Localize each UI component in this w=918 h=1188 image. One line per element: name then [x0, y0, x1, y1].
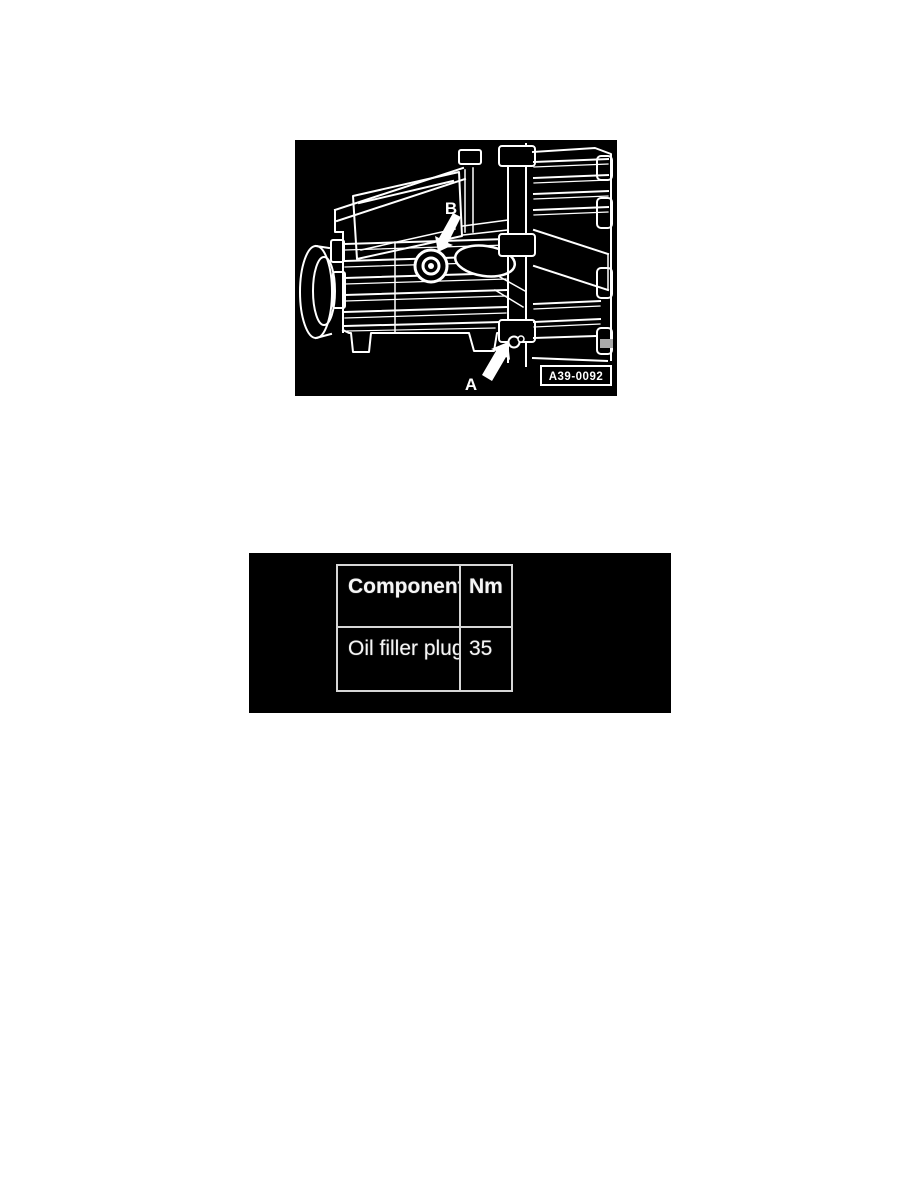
transmission-diagram: B A A39-0092	[295, 140, 617, 396]
torque-table: Component Nm Oil filler plug 35	[336, 564, 513, 692]
oil-filler-plug-b	[415, 250, 447, 282]
torque-table-panel: Component Nm Oil filler plug 35	[249, 553, 671, 713]
figure-code-box: A39-0092	[541, 366, 611, 385]
manual-page: B A A39-0092 Component Nm Oil filler plu…	[0, 0, 918, 1188]
table-row: Oil filler plug 35	[338, 628, 511, 690]
torque-table-cell-nm: 35	[461, 628, 511, 690]
torque-table-header-row: Component Nm	[338, 566, 511, 628]
callout-label-b: B	[445, 199, 457, 218]
torque-table-header-component: Component	[338, 566, 461, 626]
torque-table-header-nm: Nm	[461, 566, 511, 626]
callout-label-a: A	[465, 375, 477, 394]
torque-table-cell-component: Oil filler plug	[338, 628, 461, 690]
transmission-figure-panel: B A A39-0092	[295, 140, 617, 396]
figure-code-text: A39-0092	[549, 371, 604, 383]
